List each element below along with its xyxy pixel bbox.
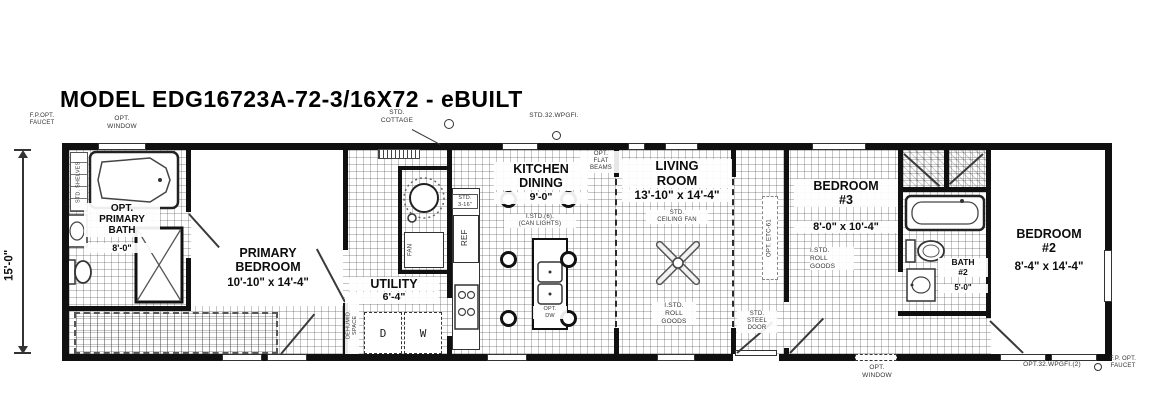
- window-living-bottom: [657, 354, 695, 361]
- page-title: MODEL EDG16723A-72-3/16X72 - eBUILT: [60, 86, 523, 113]
- can-light-icon: [500, 251, 517, 268]
- wall-wh-closet-bottom: [398, 270, 450, 274]
- std-ceiling-fan-label: STD. CEILING FAN: [646, 210, 708, 224]
- window-bedroom2-2: [1051, 354, 1097, 361]
- etc-61-label: OPT. ETC-61: [763, 197, 777, 279]
- furnace-fan: FAN: [404, 232, 444, 268]
- fan-label: FAN: [405, 233, 417, 267]
- window-primary-bedroom-2: [267, 354, 307, 361]
- cottage-porch-feature: [378, 149, 420, 159]
- porch-light-icon: [444, 119, 454, 129]
- bathtub-icon: [88, 150, 180, 210]
- beam-line-kitchen: [615, 179, 617, 327]
- wardrobe: [74, 312, 278, 354]
- fp-opt-faucet-top-label: F.P.OPT. FAUCET: [22, 113, 62, 127]
- shower-icon: [134, 226, 184, 304]
- wall-closet-divider: [944, 150, 949, 192]
- roll-goods-living-label: I.STD. ROLL GOODS: [652, 302, 696, 325]
- wall-wh-closet-left: [398, 166, 402, 274]
- floor-plan-canvas: MODEL EDG16723A-72-3/16X72 - eBUILT 15'-…: [0, 0, 1149, 414]
- bedroom3-size: 8'-0" x 10'-4": [794, 221, 898, 233]
- wall-bedroom3-left-stub: [784, 348, 789, 354]
- bath2-size: 5'-0": [938, 284, 988, 293]
- wall-utility-left-upper: [343, 150, 348, 250]
- entertainment-center: OPT. ETC-61: [762, 196, 778, 280]
- window-bedroom3-top: [812, 143, 866, 150]
- dehumid-space-label: DEHUMID. SPACE: [345, 296, 359, 354]
- opt-32-wpgfi-2-label: OPT.32.WPGFI.(2): [1008, 361, 1096, 369]
- wall-bath2-left: [898, 150, 903, 272]
- std-3-16-label: STD. 3-16": [452, 194, 478, 209]
- window-living-top-1: [628, 143, 645, 150]
- wall-bedroom3-left: [784, 150, 789, 302]
- std-32-wpgfi-label: STD.32.WPGFI.: [512, 112, 596, 120]
- window-bedroom2-1: [1000, 354, 1046, 361]
- primary-bath-size: 8'-0": [84, 243, 160, 253]
- bedroom2-label: BEDROOM #2: [994, 227, 1104, 255]
- dryer: D: [364, 312, 402, 354]
- opt-window-bottom-label: OPT. WINDOW: [854, 364, 900, 380]
- bedroom2-size: 8'-4" x 14'-4": [994, 261, 1104, 274]
- wall-exterior-top: [62, 143, 1112, 150]
- primary-bath-label: OPT. PRIMARY BATH: [84, 203, 160, 237]
- water-heater-icon: [402, 172, 446, 230]
- utility-label: UTILITY: [349, 277, 439, 291]
- washer: W: [404, 312, 442, 354]
- living-room-label: LIVING ROOM: [622, 159, 732, 188]
- bedroom3-label: BEDROOM #3: [794, 179, 898, 207]
- window-kitchen-top: [502, 143, 538, 150]
- living-room-size: 13'-10" x 14'-4": [622, 189, 732, 202]
- opt-flat-beams-label: OPT. FLAT BEAMS: [580, 151, 622, 173]
- primary-bedroom-label: PRIMARY BEDROOM: [196, 246, 340, 274]
- window-kitchen-bottom: [487, 354, 527, 361]
- wall-utility-right-lower: [447, 336, 452, 354]
- refrigerator: REF: [453, 215, 479, 263]
- utility-size: 6'-4": [349, 292, 439, 304]
- gfi-outlet-icon: [1094, 363, 1102, 371]
- steel-door-leaf: [735, 350, 777, 356]
- gfi-outlet-icon: [552, 131, 561, 140]
- window-living-top-2: [665, 143, 698, 150]
- roll-goods-bedroom3-label: I.STD. ROLL GOODS: [810, 247, 854, 270]
- std-steel-door-label: STD. STEEL DOOR: [737, 311, 777, 333]
- window-bedroom2-right: [1104, 250, 1112, 302]
- wall-exterior-bottom: [62, 354, 1112, 361]
- wall-bath1-bottom: [69, 306, 191, 311]
- dimension-tick: [14, 352, 31, 354]
- wall-wh-closet-top: [398, 166, 450, 170]
- refrigerator-label: REF: [454, 216, 476, 260]
- fp-opt-faucet-bottom-label: F.P. OPT. FAUCET: [1098, 356, 1148, 370]
- bath2-label: BATH #2: [938, 258, 988, 277]
- wall-exterior-left: [62, 143, 69, 361]
- dimension-tick: [14, 149, 31, 151]
- ceiling-fan-icon: [645, 230, 711, 296]
- bathtub2-icon: [904, 194, 986, 232]
- window-primary-bedroom-1: [222, 354, 262, 361]
- toilet-icon: [66, 252, 92, 292]
- opt-window-top-label: OPT. WINDOW: [99, 115, 145, 131]
- dimension-height-label: 15'-0": [0, 232, 20, 298]
- can-light-icon: [560, 251, 577, 268]
- kitchen-dining-size: 9'-0": [494, 192, 588, 204]
- beam-line-living: [732, 179, 734, 327]
- arrow-up-icon: [18, 150, 28, 158]
- primary-bedroom-size: 10'-10" x 14'-4": [196, 277, 340, 290]
- wall-bath2-bottom: [898, 311, 990, 316]
- wall-utility-right-upper: [447, 150, 452, 298]
- can-lights-label: I.STD.(6). (CAN LIGHTS): [504, 214, 576, 228]
- can-light-icon: [500, 310, 517, 327]
- dimension-line: [22, 153, 24, 351]
- window-bath1-top: [98, 143, 146, 150]
- wall-kitchen-stub-bottom: [614, 328, 619, 354]
- window-optional-bottom: [855, 354, 897, 361]
- wall-bath1-right-lower: [186, 258, 191, 311]
- kitchen-dining-label: KITCHEN DINING: [494, 162, 588, 190]
- sink2-icon: [906, 268, 936, 302]
- range-icon: [454, 284, 479, 330]
- opt-dw-label: OPT. DW: [533, 306, 567, 319]
- kitchen-sink-icon: [536, 260, 564, 306]
- wall-bath1-right-upper: [186, 150, 191, 212]
